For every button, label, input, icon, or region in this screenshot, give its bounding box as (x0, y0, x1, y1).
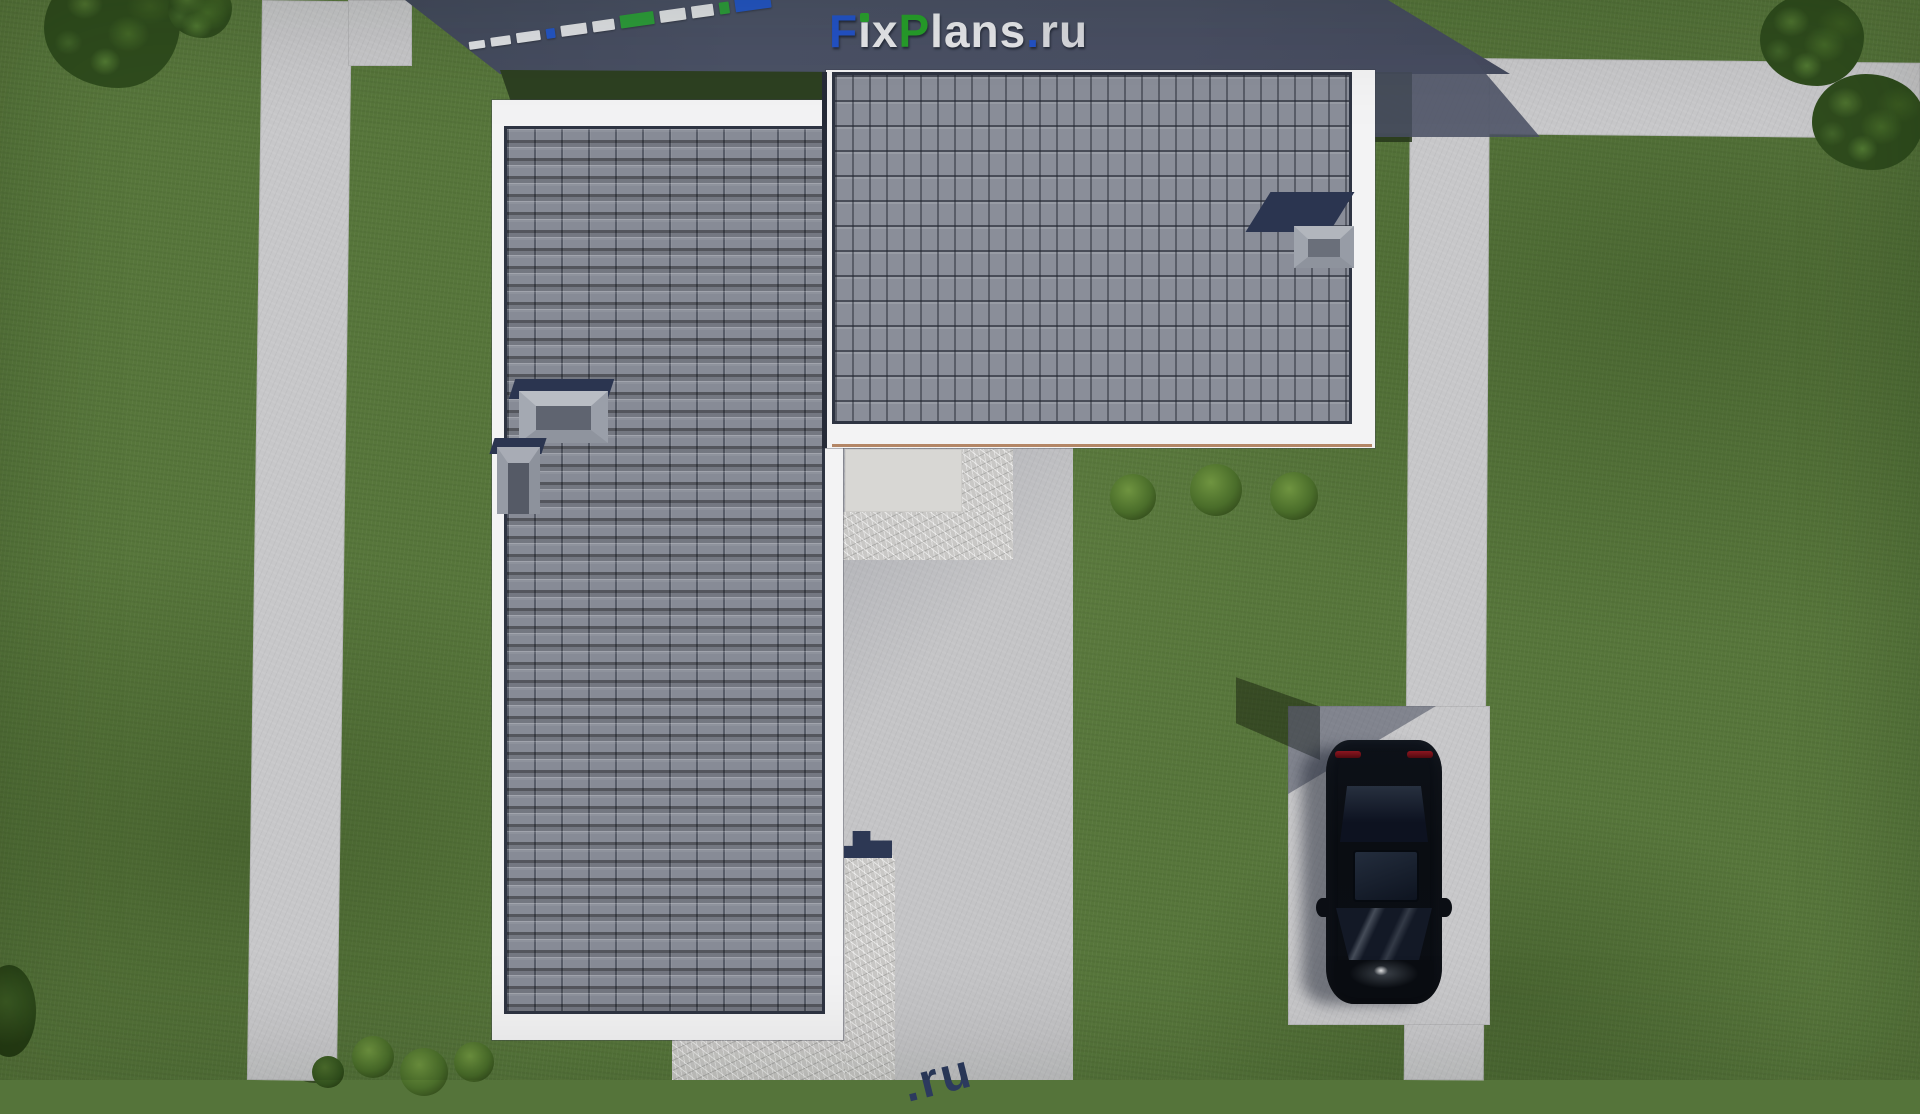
gutter-line (832, 444, 1372, 447)
logo-letter: ı (858, 8, 872, 54)
car-windshield (1336, 908, 1432, 962)
bush-courtyard-3 (1270, 472, 1318, 520)
car-mirror-left (1316, 898, 1329, 917)
watermark-block (719, 1, 731, 14)
logo-letter: l (930, 8, 944, 54)
logo-letter: n (971, 8, 1000, 54)
logo-letter: x (872, 8, 899, 54)
path-left-vertical (247, 0, 352, 1081)
car-rear-window (1340, 786, 1428, 842)
logo-letter: P (898, 8, 930, 54)
flagstone-walkway (845, 855, 895, 1080)
path-top-left-corner (348, 0, 412, 66)
bush-bottom-4 (312, 1056, 344, 1088)
brand-logo: FıxPlans.ru (829, 8, 1088, 56)
house-right-wing-roof (832, 72, 1352, 424)
car-hood (1334, 960, 1434, 998)
car-mirror-right (1439, 898, 1452, 917)
skylight-large (519, 391, 608, 443)
bush-bottom-3 (454, 1042, 494, 1082)
bush-bottom-1 (352, 1036, 394, 1078)
shadow-on-grass-top (498, 70, 844, 102)
logo-letter: a (944, 8, 971, 54)
logo-letter: r (1040, 8, 1059, 54)
car-taillight-left (1335, 751, 1361, 758)
watermark-block (546, 28, 556, 39)
logo-letter: u (1059, 8, 1088, 54)
logo-letter: . (1026, 8, 1040, 54)
house-left-wing-roof (504, 126, 825, 1014)
logo-letter: s (1000, 8, 1027, 54)
car-sunroof (1353, 850, 1419, 902)
terrace-smooth-slab (845, 449, 962, 512)
chimney (1294, 226, 1354, 268)
car-taillight-right (1407, 751, 1433, 758)
logo-i-dot (860, 13, 869, 22)
flagstone-bottom-band (672, 1040, 845, 1080)
car-top-view (1326, 740, 1442, 1004)
bush-courtyard-2 (1190, 464, 1242, 516)
bush-courtyard-1 (1110, 474, 1156, 520)
logo-letter: F (829, 8, 858, 54)
terrace-flagstone-horizontal (843, 512, 1013, 560)
bush-bottom-2 (400, 1048, 448, 1096)
skylight-small (497, 447, 540, 514)
roof-seam (822, 72, 827, 448)
